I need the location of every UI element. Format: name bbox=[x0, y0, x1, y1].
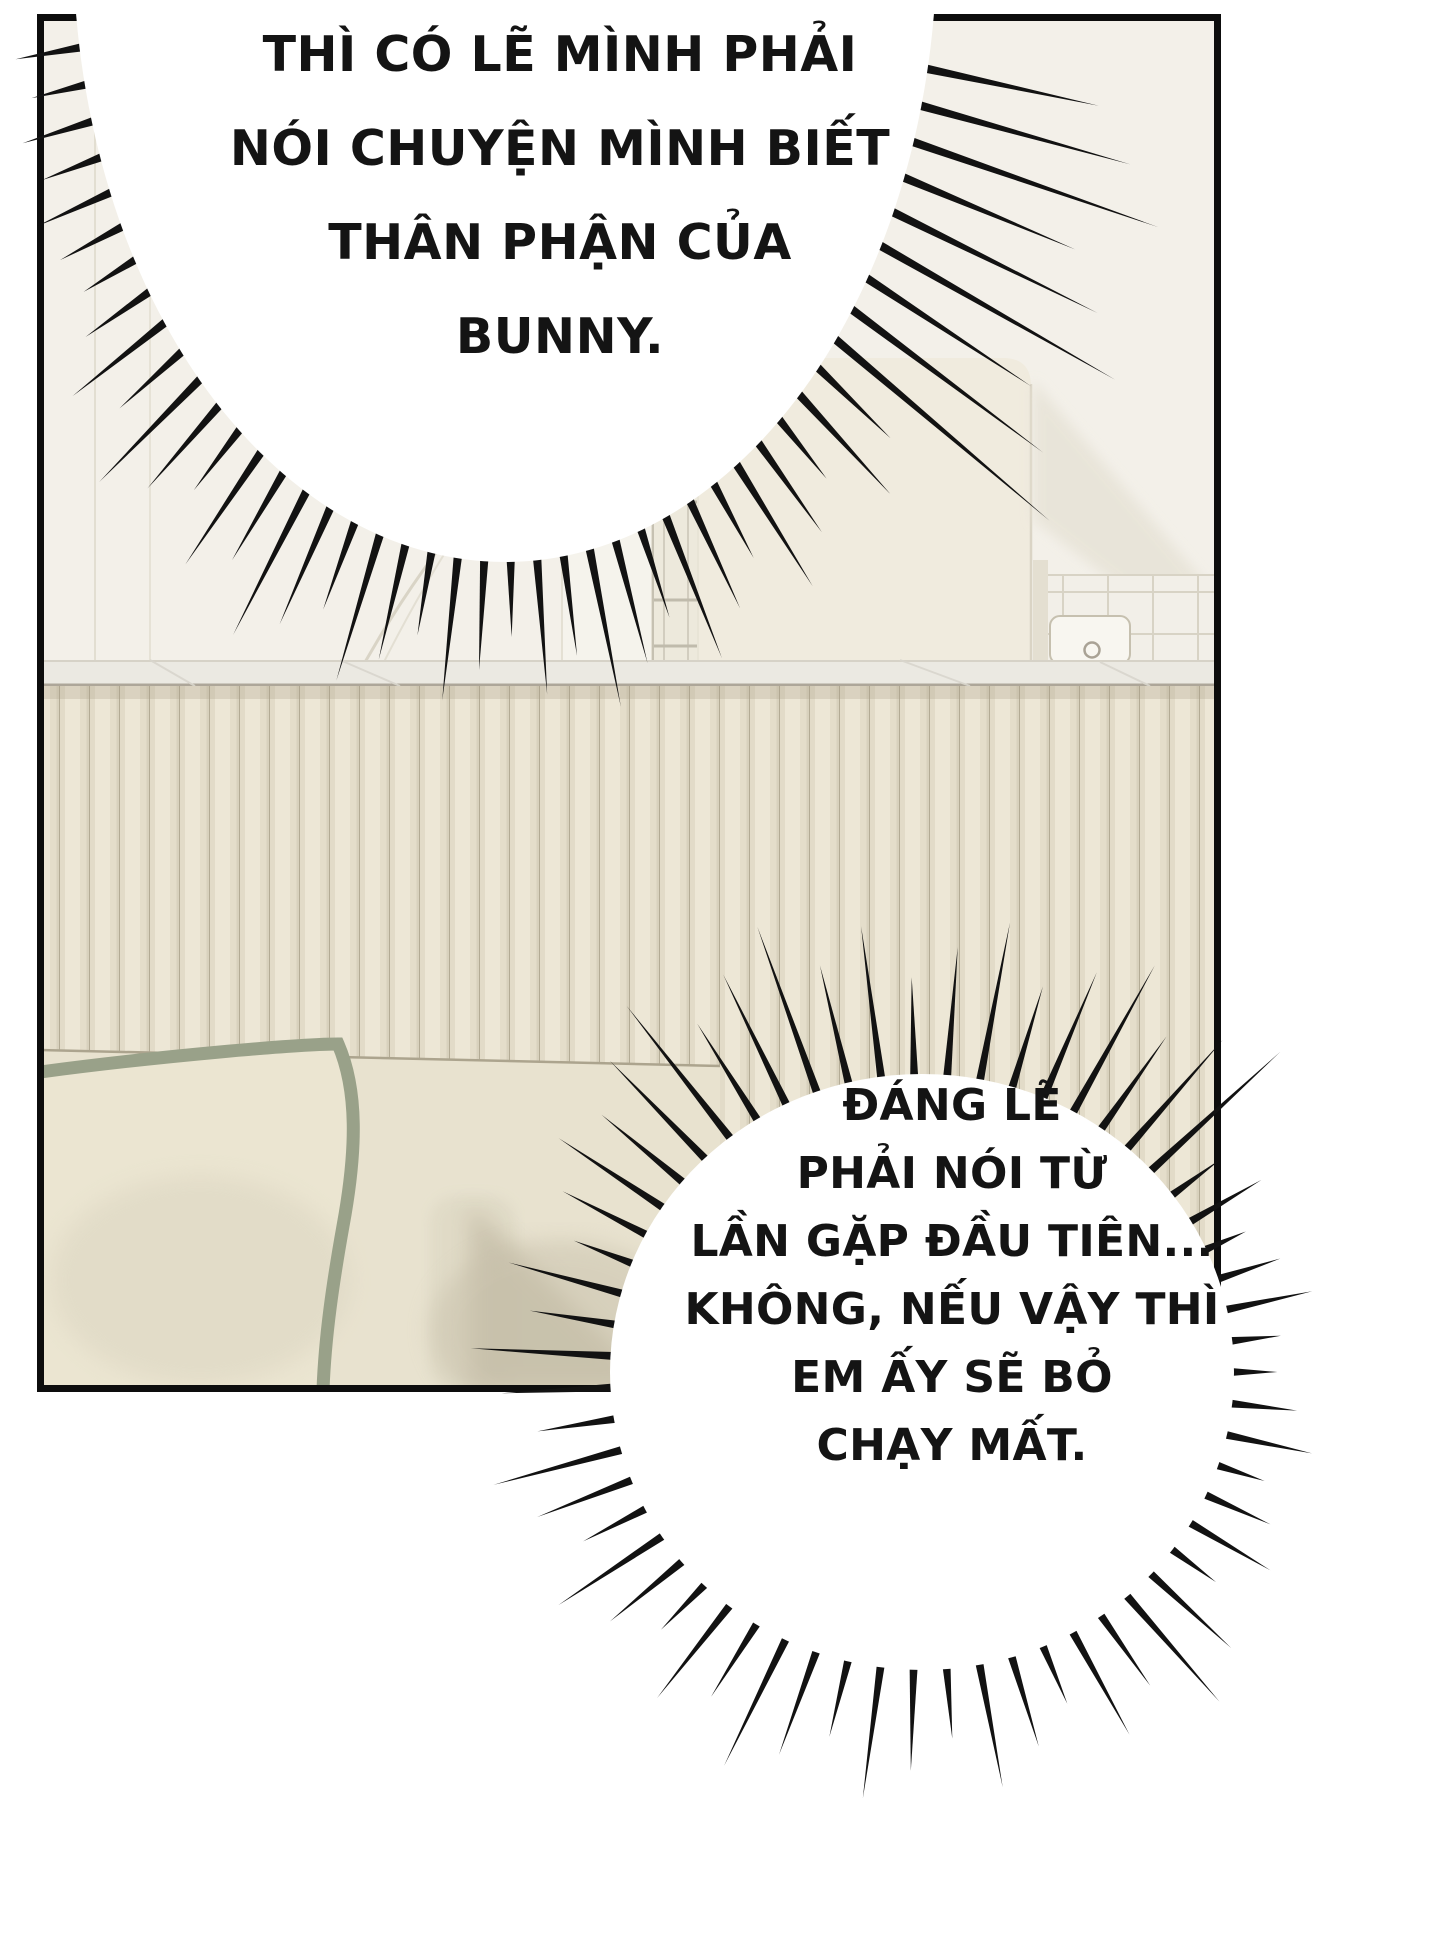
burst-spike bbox=[943, 1666, 953, 1739]
burst-spike bbox=[558, 1532, 667, 1606]
dialogue-line: THÂN PHẬN CỦA bbox=[160, 196, 960, 290]
paper-holder-knob bbox=[1085, 643, 1100, 658]
burst-spike bbox=[1186, 1518, 1270, 1570]
burst-spike bbox=[1096, 1611, 1150, 1686]
burst-spike bbox=[829, 1658, 852, 1737]
burst-spike bbox=[661, 1580, 709, 1629]
burst-spike bbox=[610, 1557, 687, 1621]
burst-spike bbox=[583, 1504, 650, 1541]
burst-spike bbox=[1202, 1490, 1271, 1524]
wainscot-top-shadow bbox=[40, 686, 1218, 699]
dialogue-top: THÌ CÓ LẼ MÌNH PHẢI NÓI CHUYỆN MÌNH BIẾT… bbox=[160, 8, 960, 384]
dialogue-line: BUNNY. bbox=[160, 290, 960, 384]
burst-spike bbox=[975, 1661, 1003, 1787]
dialogue-line: LẦN GẶP ĐẦU TIÊN... bbox=[602, 1208, 1302, 1276]
pillow-shadow bbox=[50, 1175, 350, 1385]
dialogue-line: NÓI CHUYỆN MÌNH BIẾT bbox=[160, 102, 960, 196]
dialogue-line: PHẢI NÓI TỪ bbox=[602, 1140, 1302, 1208]
comic-page: THÌ CÓ LẼ MÌNH PHẢI NÓI CHUYỆN MÌNH BIẾT… bbox=[0, 0, 1440, 1955]
dialogue-line: CHẠY MẤT. bbox=[602, 1412, 1302, 1480]
tile-gap-shadow bbox=[1033, 560, 1048, 662]
burst-spike bbox=[1038, 1642, 1067, 1703]
dialogue-bottom: ĐÁNG LẼ PHẢI NÓI TỪ LẦN GẶP ĐẦU TIÊN... … bbox=[602, 1072, 1302, 1480]
burst-spike bbox=[863, 1664, 885, 1799]
dialogue-line: THÌ CÓ LẼ MÌNH PHẢI bbox=[160, 8, 960, 102]
dialogue-line: ĐÁNG LẼ bbox=[602, 1072, 1302, 1140]
burst-spike bbox=[1168, 1545, 1216, 1582]
burst-spike bbox=[724, 1635, 790, 1765]
burst-spike bbox=[910, 1667, 918, 1771]
burst-spike bbox=[537, 1475, 635, 1517]
dialogue-line: KHÔNG, NẾU VẬY THÌ bbox=[602, 1276, 1302, 1344]
dialogue-line: EM ẤY SẼ BỎ bbox=[602, 1344, 1302, 1412]
burst-spike bbox=[711, 1620, 761, 1697]
burst-spike bbox=[779, 1648, 821, 1754]
burst-spike bbox=[1007, 1653, 1039, 1746]
burst-spike bbox=[657, 1601, 734, 1697]
burst-spike bbox=[1122, 1591, 1219, 1701]
marble-ledge bbox=[40, 660, 1218, 686]
